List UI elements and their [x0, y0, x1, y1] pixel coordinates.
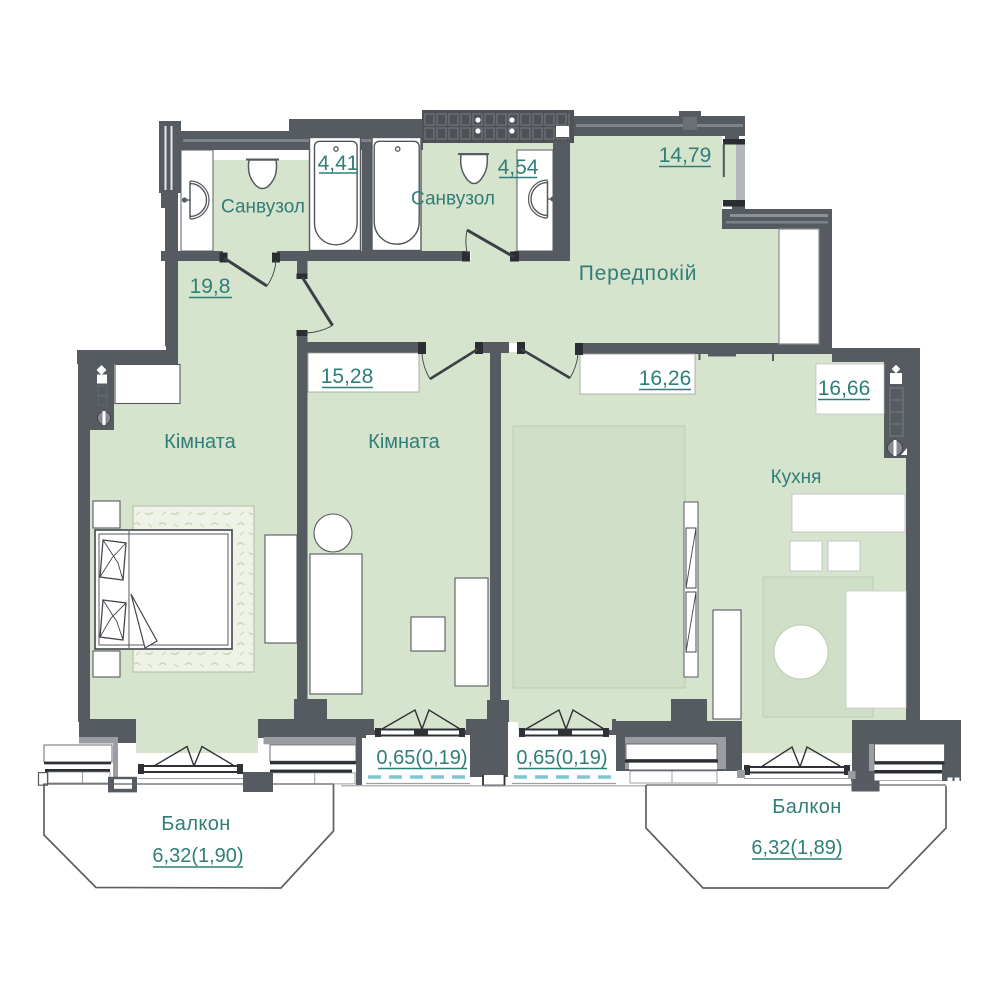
- svg-text:14,79: 14,79: [659, 144, 712, 167]
- svg-text:Санвузол: Санвузол: [221, 197, 305, 218]
- svg-text:0,65(0,19): 0,65(0,19): [516, 747, 607, 769]
- svg-text:Кімната: Кімната: [368, 431, 441, 453]
- svg-text:Балкон: Балкон: [161, 813, 230, 835]
- svg-text:Балкон: Балкон: [772, 796, 841, 818]
- svg-text:6,32(1,89): 6,32(1,89): [751, 837, 842, 859]
- svg-text:Кімната: Кімната: [164, 431, 237, 453]
- svg-text:4,54: 4,54: [498, 156, 539, 179]
- svg-text:16,66: 16,66: [818, 377, 871, 400]
- svg-text:4,41: 4,41: [318, 152, 359, 175]
- svg-text:16,26: 16,26: [639, 367, 692, 390]
- svg-text:19,8: 19,8: [190, 275, 231, 298]
- svg-text:6,32(1,90): 6,32(1,90): [152, 845, 243, 867]
- svg-text:Кухня: Кухня: [771, 467, 822, 488]
- svg-text:Передпокій: Передпокій: [579, 262, 698, 285]
- svg-text:Санвузол: Санвузол: [411, 189, 495, 210]
- svg-text:15,28: 15,28: [321, 365, 374, 388]
- svg-text:0,65(0,19): 0,65(0,19): [376, 747, 467, 769]
